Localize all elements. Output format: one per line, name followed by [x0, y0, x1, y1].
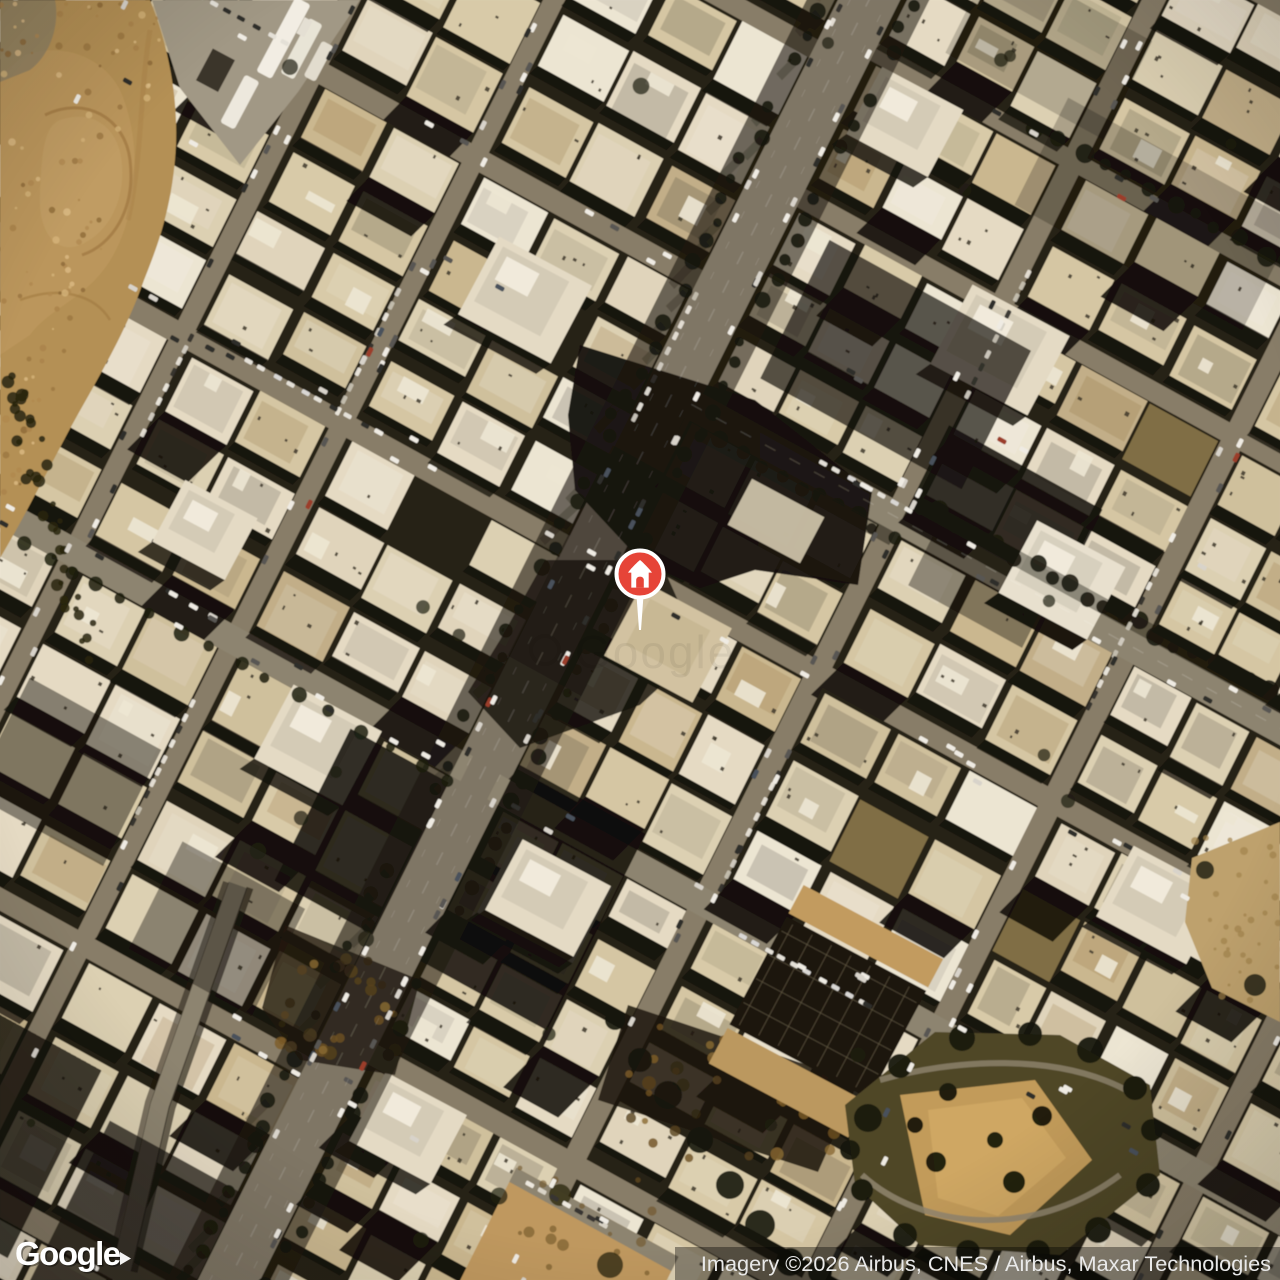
svg-text:Google: Google — [575, 626, 735, 678]
svg-text:Google: Google — [15, 1235, 121, 1272]
svg-text:Imagery ©2026 Airbus, CNES / A: Imagery ©2026 Airbus, CNES / Airbus, Max… — [701, 1251, 1271, 1276]
